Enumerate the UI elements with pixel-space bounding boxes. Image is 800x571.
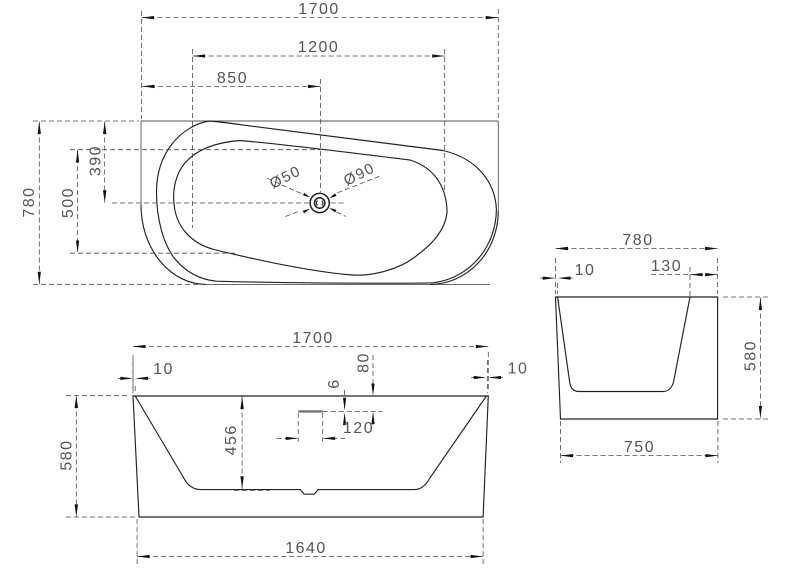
svg-text:500: 500 xyxy=(60,187,77,218)
svg-text:850: 850 xyxy=(217,70,248,87)
svg-text:780: 780 xyxy=(21,186,38,217)
svg-text:780: 780 xyxy=(622,232,653,249)
svg-text:80: 80 xyxy=(356,352,373,373)
svg-text:10: 10 xyxy=(575,262,596,279)
svg-text:10: 10 xyxy=(508,361,529,378)
svg-text:580: 580 xyxy=(59,439,76,470)
svg-text:10: 10 xyxy=(153,361,174,378)
svg-text:1200: 1200 xyxy=(298,39,340,56)
svg-text:120: 120 xyxy=(343,420,374,437)
svg-text:1640: 1640 xyxy=(285,540,327,557)
svg-text:456: 456 xyxy=(223,424,240,455)
svg-text:1700: 1700 xyxy=(292,330,334,347)
svg-text:750: 750 xyxy=(624,439,655,456)
svg-text:130: 130 xyxy=(651,258,682,275)
svg-text:580: 580 xyxy=(743,340,760,371)
svg-text:6: 6 xyxy=(326,378,343,388)
svg-text:1700: 1700 xyxy=(298,1,340,18)
